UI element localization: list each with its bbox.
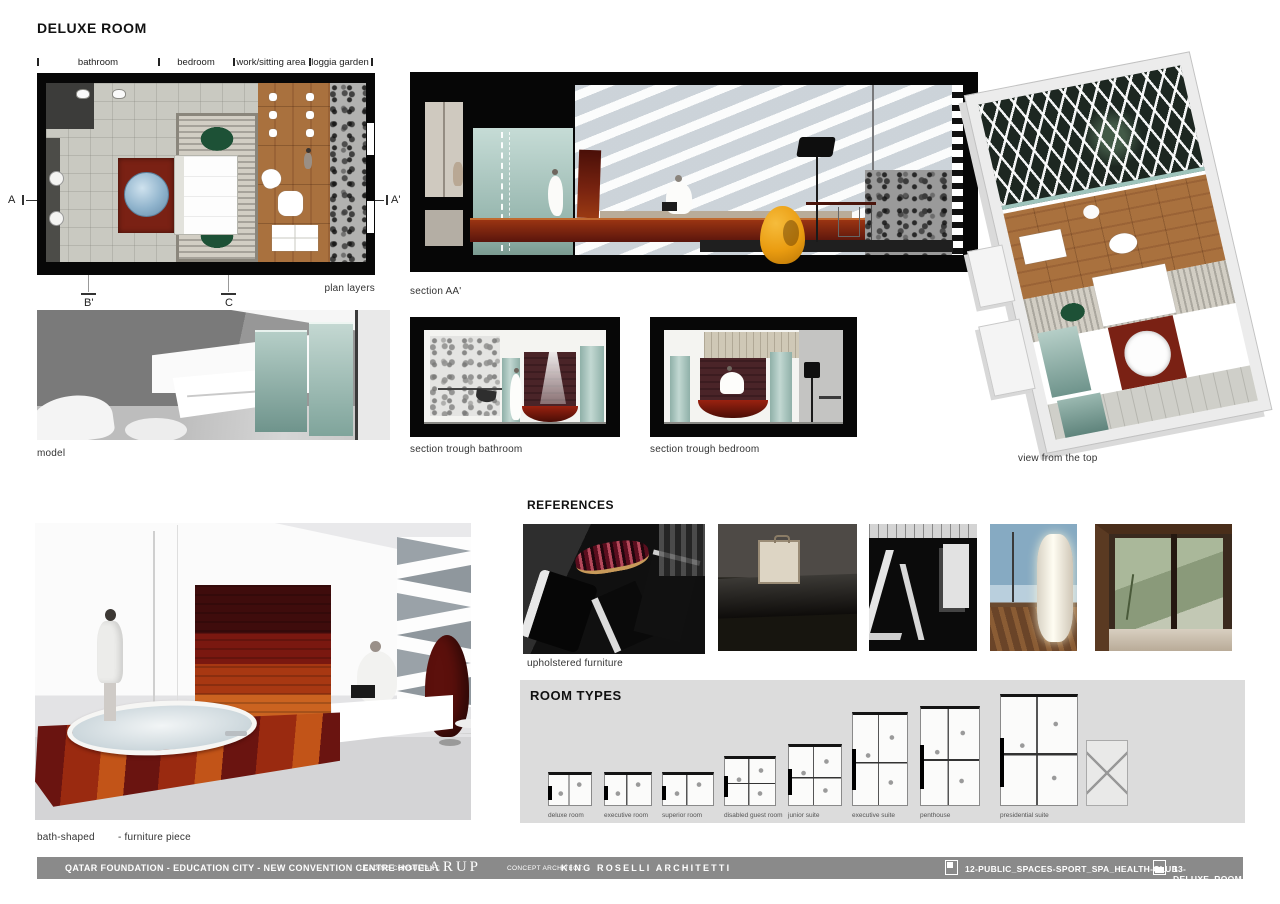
marker-tick	[221, 293, 236, 295]
concept-architect-name: KING ROSELLI ARCHITETTI	[561, 863, 731, 873]
reference-photo-bench-case	[718, 524, 857, 651]
zone-tick	[37, 58, 39, 66]
section-marker-c: C	[225, 297, 233, 309]
plan-chair	[306, 129, 314, 137]
reference-photo-showroom	[523, 524, 705, 654]
floor-plan-drawing	[46, 83, 366, 262]
window-sill	[1109, 629, 1232, 651]
marker-line	[228, 275, 229, 292]
figure-legs	[104, 683, 116, 721]
section-aa-closet	[425, 102, 463, 197]
woman-figure	[97, 609, 123, 721]
plan-caption: plan layers	[300, 283, 375, 294]
reference-photo-interior	[869, 524, 977, 651]
dark-floor-strip	[700, 240, 953, 252]
plan-chair	[269, 129, 277, 137]
bath-caption-name: bath-shaped	[37, 832, 95, 843]
floor-line	[424, 422, 606, 424]
reference-photo-window	[1095, 524, 1232, 651]
bed-mattress	[600, 211, 852, 218]
background-people	[659, 524, 705, 576]
glass-cylinder	[580, 346, 604, 424]
white-bed	[331, 695, 453, 743]
plan-window	[367, 123, 374, 155]
room-type-plan-deluxe	[548, 772, 592, 806]
room-type-label: presidential suite	[1000, 812, 1049, 819]
section-marker-b: B'	[84, 297, 93, 309]
floor-lamp-stem	[816, 157, 818, 242]
zone-label-work-sitting: work/sitting area	[236, 57, 306, 68]
room-type-label: junior suite	[788, 812, 819, 819]
axon-shelf	[967, 244, 1015, 307]
section-marker-a-prime: A'	[391, 194, 400, 206]
plan-chair	[306, 93, 314, 101]
model-caption: model	[37, 448, 65, 459]
room-type-label: executive room	[604, 812, 648, 819]
plan-chair	[306, 111, 314, 119]
illuminated-cylinder	[1037, 534, 1073, 642]
top-view-caption: view from the top	[1018, 453, 1098, 464]
plan-loggia-garden	[330, 83, 366, 262]
section-bedroom-caption: section trough bedroom	[650, 444, 759, 455]
egg-chair-base	[439, 739, 461, 746]
axon-glass-panel	[1037, 326, 1091, 398]
plan-side-table	[278, 191, 303, 216]
marker-tick	[22, 195, 24, 205]
model-glass-panel	[309, 322, 353, 436]
marker-line	[88, 275, 89, 292]
section-marker-a: A	[8, 194, 15, 206]
window-mullion	[1171, 534, 1177, 634]
zone-label-bedroom: bedroom	[162, 57, 230, 68]
section-bedroom-panel	[650, 317, 857, 437]
model-chair	[125, 418, 187, 440]
room-type-plan-disabled	[724, 756, 776, 806]
sheet-ref-public-spaces: 12-PUBLIC_SPACES-SPORT_SPA_HEALTH-CLUB	[965, 864, 1178, 874]
room-type-plan-presidential	[1000, 694, 1078, 806]
zone-tick	[371, 58, 373, 66]
room-type-plan-executive	[604, 772, 652, 806]
section-aa-cabinet	[425, 210, 463, 246]
plan-chair	[269, 93, 277, 101]
room-type-label: penthouse	[920, 812, 950, 819]
plan-sink	[49, 211, 64, 226]
plan-tub-circle	[124, 172, 169, 217]
presentation-board: DELUXE ROOM bathroom bedroom work/sittin…	[0, 0, 1280, 904]
floor-lamp-stem	[811, 378, 813, 424]
top-view-render	[965, 52, 1271, 452]
wood-panel	[524, 352, 576, 406]
section-aa-panel	[410, 72, 978, 272]
model-photo	[37, 310, 390, 440]
room-type-plan-presidential-annex	[1086, 740, 1128, 806]
desk	[806, 202, 876, 205]
model-glass-panel	[255, 330, 307, 432]
plan-sink	[49, 171, 64, 186]
room-type-label: superior room	[662, 812, 702, 819]
robe-figure	[453, 162, 463, 186]
floor-lamp-head	[796, 137, 836, 157]
person-on-bed-figure	[720, 372, 744, 394]
marker-tick	[81, 293, 96, 295]
room-types-title: ROOM TYPES	[530, 688, 622, 703]
references-caption: upholstered furniture	[527, 658, 623, 669]
axon-stool	[1082, 204, 1101, 221]
sheet-ref-deluxe-room: 13-DELUXE_ROOM	[1173, 864, 1243, 884]
reference-photo-lamp	[990, 524, 1077, 651]
sheet-icon	[945, 860, 958, 875]
tree-texture	[430, 336, 500, 416]
desk	[819, 396, 841, 399]
plan-window	[367, 201, 374, 233]
section-aa-caption: section AA'	[410, 286, 461, 297]
arup-logo: ARUP	[429, 859, 481, 876]
white-panel	[943, 544, 969, 608]
room-type-label: deluxe room	[548, 812, 584, 819]
ceiling-grid	[869, 524, 977, 538]
room-type-plan-penthouse	[920, 706, 980, 806]
man-with-laptop-figure	[666, 182, 692, 214]
marker-line	[375, 200, 384, 201]
woman-figure	[548, 176, 563, 216]
axon-round-table	[1107, 231, 1139, 256]
plan-vanity-strip	[46, 138, 60, 262]
bath-tub-profile	[522, 406, 578, 422]
plan-toilet	[76, 89, 90, 99]
floor-plan-panel	[37, 73, 375, 275]
section-bathroom-caption: section trough bathroom	[410, 444, 522, 455]
title-block-bar: QATAR FOUNDATION - EDUCATION CITY - NEW …	[37, 857, 1243, 879]
zone-tick	[233, 58, 235, 66]
figure-towel	[97, 621, 123, 683]
plan-bed	[174, 155, 238, 235]
zone-tick	[158, 58, 160, 66]
desk-chair	[838, 207, 860, 237]
shower-stream	[540, 352, 566, 404]
section-bathroom-panel	[410, 317, 620, 437]
bath-render	[35, 523, 471, 820]
axon-shelf	[978, 319, 1035, 397]
plan-person-figure	[304, 153, 312, 169]
glass-cylinder	[670, 356, 690, 424]
sheet-icon	[1153, 860, 1166, 875]
zone-label-bathroom: bathroom	[42, 57, 154, 68]
page-title: DELUXE ROOM	[37, 20, 147, 36]
references-title: REFERENCES	[527, 498, 614, 512]
bench-line	[438, 388, 504, 390]
woman-figure	[510, 374, 522, 420]
axon-glass-panel	[1057, 392, 1109, 437]
axon-table	[1019, 229, 1067, 264]
wood-headboard	[577, 150, 601, 219]
bath-caption-desc: - furniture piece	[118, 832, 191, 843]
marker-line	[26, 200, 37, 201]
striped-upholstered-piece	[573, 536, 651, 578]
man-with-laptop-figure	[357, 651, 397, 703]
faucet	[225, 731, 247, 736]
room-type-plan-junior-suite	[788, 744, 842, 806]
room-type-plan-executive-suite	[852, 712, 908, 806]
thin-pole	[1012, 532, 1014, 602]
furniture-profile	[523, 568, 598, 653]
bed-profile	[698, 400, 768, 418]
figure-head	[105, 609, 116, 621]
zone-label-loggia: loggia garden	[311, 57, 369, 68]
room-type-plan-superior	[662, 772, 714, 806]
plan-bidet	[112, 89, 126, 99]
plan-sofa	[272, 225, 318, 251]
marker-tick	[386, 195, 388, 205]
model-column	[358, 310, 390, 440]
plan-chair	[269, 111, 277, 119]
floor-line	[664, 422, 843, 424]
glass-cylinder	[770, 352, 792, 424]
floor-lamp-head	[804, 362, 820, 378]
louvre-strip	[952, 85, 963, 255]
travel-case	[758, 540, 800, 584]
section-bathroom-drawing	[424, 330, 606, 424]
plan-bathtub	[118, 158, 174, 233]
room-type-label: executive suite	[852, 812, 895, 819]
egg-chair-orange	[760, 206, 805, 264]
room-type-label: disabled guest room	[724, 812, 783, 819]
section-bedroom-drawing	[664, 330, 843, 424]
